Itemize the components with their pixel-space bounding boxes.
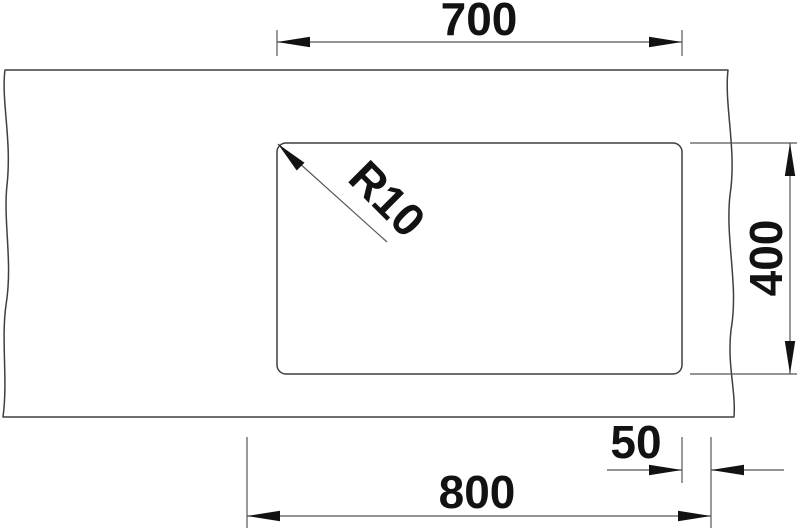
dim-800-arrow-left-icon bbox=[247, 511, 280, 521]
dim-800-label: 800 bbox=[439, 466, 516, 518]
bowl-cutout-rect bbox=[277, 143, 682, 374]
dim-400-arrow-down-icon bbox=[785, 341, 795, 374]
dim-50-arrow-right-icon bbox=[711, 465, 744, 475]
dim-400-label: 400 bbox=[740, 220, 792, 297]
dimension-drawing-canvas: 700 400 800 50 R10 bbox=[0, 0, 800, 529]
dim-700-arrow-right-icon bbox=[649, 37, 682, 47]
radius-label: R10 bbox=[339, 150, 435, 246]
dim-700-label: 700 bbox=[441, 0, 518, 45]
dim-800-arrow-right-icon bbox=[678, 511, 711, 521]
dimension-drawing: 700 400 800 50 R10 bbox=[0, 0, 800, 529]
radius-leader-arrow-icon bbox=[278, 144, 305, 171]
dim-50-label: 50 bbox=[610, 416, 661, 468]
dim-700-arrow-left-icon bbox=[277, 37, 310, 47]
dim-400-arrow-up-icon bbox=[785, 143, 795, 176]
sink-outer-edge-with-break-lines bbox=[3, 70, 734, 417]
